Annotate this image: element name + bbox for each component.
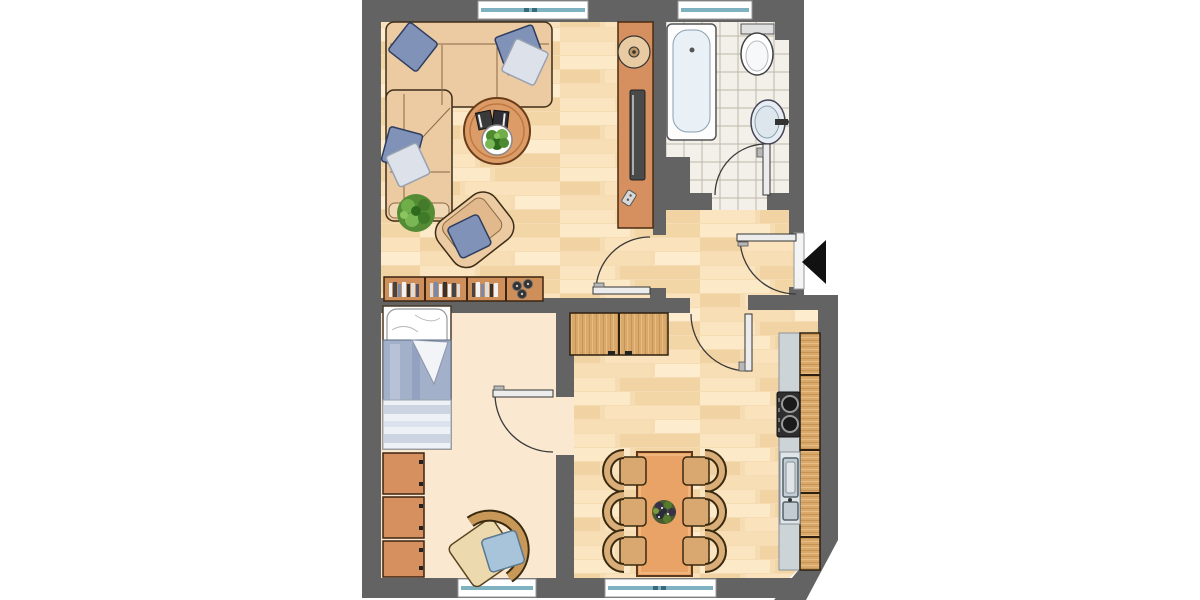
door-handle xyxy=(738,242,748,246)
door-handle xyxy=(757,148,763,157)
stove xyxy=(777,392,800,437)
toilet xyxy=(741,24,774,75)
chair-seat xyxy=(683,537,709,565)
sideboard xyxy=(570,313,668,355)
double-sink xyxy=(780,452,800,524)
floor-plan-drawing xyxy=(0,0,1200,600)
door-leaf xyxy=(493,390,553,397)
bedroom-door-gap-floor xyxy=(556,397,574,455)
chair-seat xyxy=(620,457,646,485)
chair-seat xyxy=(620,498,646,526)
single-bed xyxy=(383,306,451,449)
bookshelf-sideboard xyxy=(384,277,543,301)
living-room-window xyxy=(478,1,588,19)
cabinet-row xyxy=(800,333,820,570)
kitchen-window xyxy=(605,579,716,597)
kitchen-counter-run xyxy=(777,333,820,570)
living-door-gap-floor xyxy=(650,233,666,290)
chair-seat xyxy=(683,457,709,485)
sink-faucet-icon xyxy=(788,498,792,502)
wall-living-bath xyxy=(653,20,666,235)
hallway-floor xyxy=(653,200,794,300)
floor-plan-canvas xyxy=(0,0,1200,600)
wall-bath-south-right xyxy=(767,193,804,210)
entrance-arrow-icon xyxy=(802,240,826,284)
floor-plant xyxy=(397,194,435,232)
bathtub-drain xyxy=(690,48,695,53)
tv-lowboard xyxy=(618,22,653,228)
coffee-table xyxy=(464,98,530,164)
chair-seat xyxy=(620,537,646,565)
door-handle xyxy=(594,283,604,287)
wall-living-door-stub xyxy=(650,288,666,300)
wall-bottom xyxy=(362,578,802,598)
books-row-1 xyxy=(389,282,419,297)
wall-bath-step xyxy=(666,157,690,193)
burner xyxy=(782,416,798,432)
door-handle xyxy=(739,362,745,371)
wall-bath-alcove xyxy=(775,20,789,40)
table-plant xyxy=(482,125,512,155)
door-leaf xyxy=(745,314,752,371)
burner xyxy=(782,396,798,412)
door-leaf xyxy=(763,144,770,195)
wall-bedroom-kitchen-lower xyxy=(556,455,574,578)
bathroom-window xyxy=(678,1,752,19)
door-leaf xyxy=(593,287,650,294)
door-handle xyxy=(494,386,504,390)
dining-set xyxy=(607,452,722,576)
tv xyxy=(630,90,645,180)
door-leaf xyxy=(737,234,796,241)
table-centerpiece xyxy=(652,500,676,524)
bathtub xyxy=(667,24,716,140)
wall-bath-south-left xyxy=(666,193,712,210)
chair-seat xyxy=(683,498,709,526)
speaker-bowl xyxy=(618,36,650,68)
bathroom-door-threshold xyxy=(712,193,767,208)
wardrobe xyxy=(383,453,424,577)
books-row-2 xyxy=(430,282,460,297)
